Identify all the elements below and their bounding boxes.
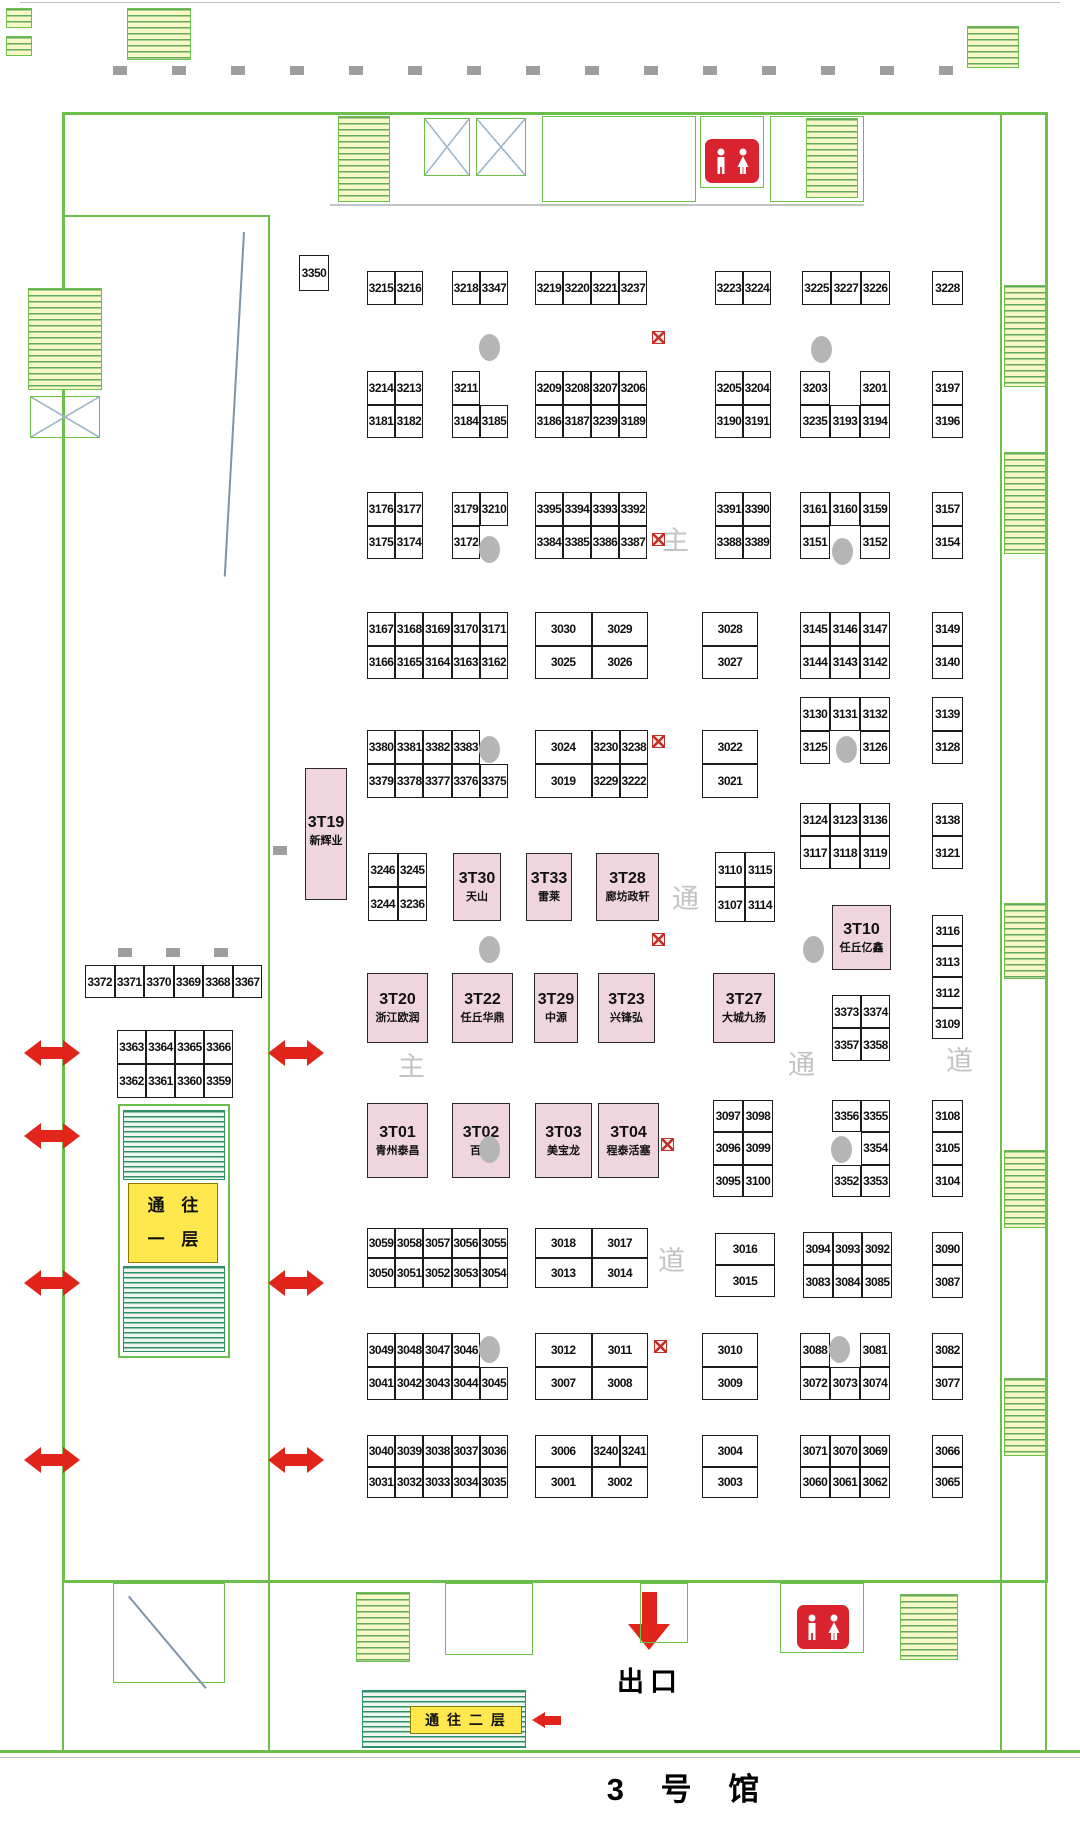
booth-3048[interactable]: 3048 [395, 1333, 423, 1367]
wall-pillar [273, 846, 287, 855]
booth-3392[interactable]: 3392 [619, 492, 647, 526]
column-pillar [811, 336, 832, 363]
stairs-block [1004, 452, 1046, 554]
booth-3040[interactable]: 3040 [367, 1435, 395, 1467]
booth-id: 3T22 [464, 990, 500, 1011]
booth-3051[interactable]: 3051 [395, 1258, 423, 1288]
stairs-block [1004, 285, 1046, 387]
escalator-hatch [123, 1110, 225, 1180]
booth-3049[interactable]: 3049 [367, 1333, 395, 1367]
booth-3095[interactable]: 3095 [713, 1165, 743, 1197]
booth-3003[interactable]: 3003 [702, 1467, 758, 1499]
booth-3011[interactable]: 3011 [592, 1333, 649, 1367]
booth-3033[interactable]: 3033 [423, 1467, 451, 1499]
stairs-block [1004, 903, 1046, 979]
booth-3T30[interactable]: 3T30天山 [453, 853, 501, 921]
booth-3T33[interactable]: 3T33雷莱 [526, 853, 572, 921]
booth-3042[interactable]: 3042 [395, 1367, 423, 1401]
booth-3213[interactable]: 3213 [395, 371, 423, 405]
booth-3219[interactable]: 3219 [535, 271, 563, 305]
booth-3112[interactable]: 3112 [932, 977, 963, 1008]
booth-3T20[interactable]: 3T20浙江欧润 [367, 973, 428, 1043]
booth-3016[interactable]: 3016 [715, 1233, 775, 1265]
booth-3002[interactable]: 3002 [592, 1467, 649, 1499]
booth-3116[interactable]: 3116 [932, 915, 963, 946]
booth-3214[interactable]: 3214 [367, 371, 395, 405]
to-first-floor-line1: 通 往 [142, 1189, 205, 1223]
booth-3357[interactable]: 3357 [832, 1028, 861, 1061]
booth-3170[interactable]: 3170 [452, 612, 480, 646]
booth-3211[interactable]: 3211 [452, 371, 480, 405]
booth-id: 3T33 [531, 869, 567, 890]
booth-3009[interactable]: 3009 [702, 1367, 758, 1401]
to-second-floor-label[interactable]: 通 往 二 层 [410, 1706, 522, 1734]
booth-3090[interactable]: 3090 [932, 1232, 963, 1265]
booth-3107[interactable]: 3107 [715, 887, 745, 922]
booth-3364[interactable]: 3364 [146, 1030, 175, 1064]
booth-3057[interactable]: 3057 [423, 1228, 451, 1258]
booth-3190[interactable]: 3190 [715, 405, 743, 439]
booth-3160[interactable]: 3160 [830, 492, 860, 526]
booth-3131[interactable]: 3131 [830, 697, 860, 731]
booth-3060[interactable]: 3060 [800, 1467, 830, 1499]
booth-3052[interactable]: 3052 [423, 1258, 451, 1288]
booth-3T29[interactable]: 3T29中源 [534, 973, 578, 1043]
booth-3367[interactable]: 3367 [233, 965, 263, 998]
booth-3010[interactable]: 3010 [702, 1333, 758, 1367]
woman-figure-icon [735, 148, 751, 175]
booth-3050[interactable]: 3050 [367, 1258, 395, 1288]
booth-3008[interactable]: 3008 [592, 1367, 649, 1401]
booth-3T22[interactable]: 3T22任丘华鼎 [452, 973, 513, 1043]
booth-3088[interactable]: 3088 [800, 1333, 830, 1367]
booth-3177[interactable]: 3177 [395, 492, 423, 526]
stairs-block [1004, 1150, 1046, 1228]
booth-3081[interactable]: 3081 [860, 1333, 890, 1367]
booth-3T04[interactable]: 3T04程泰活塞 [598, 1103, 659, 1178]
booth-3094[interactable]: 3094 [803, 1232, 833, 1265]
booth-3380[interactable]: 3380 [367, 730, 395, 764]
booth-3205[interactable]: 3205 [715, 371, 743, 405]
booth-3216[interactable]: 3216 [395, 271, 423, 305]
booth-3164[interactable]: 3164 [423, 646, 451, 680]
booth-3084[interactable]: 3084 [833, 1265, 863, 1298]
booth-3026[interactable]: 3026 [592, 646, 649, 680]
booth-3130[interactable]: 3130 [800, 697, 830, 731]
booth-3159[interactable]: 3159 [860, 492, 890, 526]
booth-3230[interactable]: 3230 [592, 730, 620, 764]
booth-3162[interactable]: 3162 [480, 646, 508, 680]
wall-pillar [231, 66, 245, 75]
booth-3365[interactable]: 3365 [175, 1030, 204, 1064]
booth-3054[interactable]: 3054 [480, 1258, 508, 1288]
booth-3025[interactable]: 3025 [535, 646, 592, 680]
booth-3353[interactable]: 3353 [861, 1165, 890, 1197]
to-first-floor-label[interactable]: 通 往 一 层 [128, 1183, 218, 1263]
booth-3123[interactable]: 3123 [830, 803, 860, 836]
booth-company-name: 兴锋弘 [610, 1011, 643, 1025]
wall-line [330, 204, 864, 206]
booth-3241[interactable]: 3241 [620, 1435, 648, 1467]
booth-company-name: 程泰活塞 [607, 1144, 651, 1158]
booth-3362[interactable]: 3362 [117, 1064, 146, 1098]
booth-3165[interactable]: 3165 [395, 646, 423, 680]
booth-3T27[interactable]: 3T27大城九扬 [713, 973, 775, 1043]
booth-3140[interactable]: 3140 [932, 646, 963, 680]
booth-3062[interactable]: 3062 [860, 1467, 890, 1499]
booth-3059[interactable]: 3059 [367, 1228, 395, 1258]
booth-3087[interactable]: 3087 [932, 1265, 963, 1298]
booth-3354[interactable]: 3354 [861, 1132, 890, 1164]
booth-3T01[interactable]: 3T01青州泰昌 [367, 1103, 428, 1178]
booth-3167[interactable]: 3167 [367, 612, 395, 646]
booth-3056[interactable]: 3056 [452, 1228, 480, 1258]
booth-3366[interactable]: 3366 [204, 1030, 233, 1064]
column-pillar [829, 1336, 850, 1363]
booth-3172[interactable]: 3172 [452, 526, 480, 560]
booth-3018[interactable]: 3018 [535, 1228, 592, 1258]
booth-3386[interactable]: 3386 [591, 526, 619, 560]
booth-3043[interactable]: 3043 [423, 1367, 451, 1401]
booth-3T10[interactable]: 3T10任丘亿鑫 [832, 905, 891, 970]
booth-3221[interactable]: 3221 [591, 271, 619, 305]
booth-3220[interactable]: 3220 [563, 271, 591, 305]
booth-3179[interactable]: 3179 [452, 492, 480, 526]
booth-company-name: 美宝龙 [547, 1144, 580, 1158]
booth-3387[interactable]: 3387 [619, 526, 647, 560]
booth-3191[interactable]: 3191 [743, 405, 771, 439]
booth-3149[interactable]: 3149 [932, 612, 963, 646]
booth-3015[interactable]: 3015 [715, 1265, 775, 1297]
booth-3017[interactable]: 3017 [592, 1228, 649, 1258]
column-pillar [803, 936, 824, 963]
booth-id: 3T10 [843, 920, 879, 941]
stairs-block [6, 36, 32, 56]
booth-3061[interactable]: 3061 [830, 1467, 860, 1499]
booth-3381[interactable]: 3381 [395, 730, 423, 764]
booth-3T28[interactable]: 3T28廊坊政轩 [596, 853, 659, 921]
booth-3077[interactable]: 3077 [932, 1367, 963, 1401]
booth-3119[interactable]: 3119 [860, 836, 890, 869]
booth-3142[interactable]: 3142 [860, 646, 890, 680]
booth-3360[interactable]: 3360 [175, 1064, 204, 1098]
booth-3066[interactable]: 3066 [932, 1435, 963, 1467]
booth-3237[interactable]: 3237 [619, 271, 647, 305]
booth-3117[interactable]: 3117 [800, 836, 830, 869]
wall-pillar [585, 66, 599, 75]
booth-3384[interactable]: 3384 [535, 526, 563, 560]
booth-3024[interactable]: 3024 [535, 730, 592, 764]
booth-3376[interactable]: 3376 [452, 764, 480, 798]
booth-3007[interactable]: 3007 [535, 1367, 592, 1401]
booth-3022[interactable]: 3022 [702, 730, 758, 764]
booth-3031[interactable]: 3031 [367, 1467, 395, 1499]
booth-3114[interactable]: 3114 [745, 887, 775, 922]
booth-3373[interactable]: 3373 [832, 995, 861, 1028]
booth-3204[interactable]: 3204 [743, 371, 771, 405]
booth-3181[interactable]: 3181 [367, 405, 395, 439]
wall-pillar [172, 66, 186, 75]
booth-3390[interactable]: 3390 [743, 492, 771, 526]
booth-3012[interactable]: 3012 [535, 1333, 592, 1367]
booth-3375[interactable]: 3375 [480, 764, 508, 798]
booth-3223[interactable]: 3223 [715, 271, 743, 305]
booth-3083[interactable]: 3083 [803, 1265, 833, 1298]
booth-3393[interactable]: 3393 [591, 492, 619, 526]
booth-3196[interactable]: 3196 [932, 405, 963, 439]
booth-3186[interactable]: 3186 [535, 405, 563, 439]
booth-3154[interactable]: 3154 [932, 526, 963, 560]
booth-3246[interactable]: 3246 [368, 853, 398, 887]
booth-3069[interactable]: 3069 [860, 1435, 890, 1467]
booth-3174[interactable]: 3174 [395, 526, 423, 560]
elevator-shaft [30, 396, 100, 438]
booth-3239[interactable]: 3239 [591, 405, 619, 439]
booth-3355[interactable]: 3355 [861, 1100, 890, 1132]
booth-3128[interactable]: 3128 [932, 731, 963, 765]
booth-3058[interactable]: 3058 [395, 1228, 423, 1258]
wall-pillar [290, 66, 304, 75]
booth-3194[interactable]: 3194 [860, 405, 890, 439]
booth-3096[interactable]: 3096 [713, 1132, 743, 1164]
booth-3151[interactable]: 3151 [800, 526, 830, 560]
booth-3014[interactable]: 3014 [592, 1258, 649, 1288]
booth-company-name: 雷莱 [538, 890, 560, 904]
booth-3378[interactable]: 3378 [395, 764, 423, 798]
booth-3125[interactable]: 3125 [800, 731, 830, 765]
booth-3034[interactable]: 3034 [452, 1467, 480, 1499]
booth-3168[interactable]: 3168 [395, 612, 423, 646]
booth-3224[interactable]: 3224 [743, 271, 771, 305]
booth-3082[interactable]: 3082 [932, 1333, 963, 1367]
column-pillar [836, 736, 857, 763]
booth-3372[interactable]: 3372 [85, 965, 115, 998]
booth-3363[interactable]: 3363 [117, 1030, 146, 1064]
booth-3350[interactable]: 3350 [299, 255, 329, 291]
booth-3053[interactable]: 3053 [452, 1258, 480, 1288]
booth-3222[interactable]: 3222 [620, 764, 648, 798]
booth-3245[interactable]: 3245 [398, 853, 428, 887]
booth-3029[interactable]: 3029 [592, 612, 649, 646]
booth-3072[interactable]: 3072 [800, 1367, 830, 1401]
booth-3145[interactable]: 3145 [800, 612, 830, 646]
booth-3099[interactable]: 3099 [743, 1132, 773, 1164]
booth-3161[interactable]: 3161 [800, 492, 830, 526]
wall-pillar [166, 948, 180, 957]
booth-3001[interactable]: 3001 [535, 1467, 592, 1499]
booth-3113[interactable]: 3113 [932, 946, 963, 977]
booth-3238[interactable]: 3238 [620, 730, 648, 764]
booth-3368[interactable]: 3368 [203, 965, 233, 998]
booth-company-name: 廊坊政轩 [606, 890, 650, 904]
booth-3163[interactable]: 3163 [452, 646, 480, 680]
booth-3108[interactable]: 3108 [932, 1100, 963, 1132]
booth-3039[interactable]: 3039 [395, 1435, 423, 1467]
booth-3047[interactable]: 3047 [423, 1333, 451, 1367]
woman-figure-icon [826, 1614, 842, 1641]
booth-3124[interactable]: 3124 [800, 803, 830, 836]
booth-3175[interactable]: 3175 [367, 526, 395, 560]
booth-3041[interactable]: 3041 [367, 1367, 395, 1401]
booth-3092[interactable]: 3092 [862, 1232, 892, 1265]
booth-3104[interactable]: 3104 [932, 1165, 963, 1197]
booth-3T23[interactable]: 3T23兴锋弘 [598, 973, 655, 1043]
booth-3377[interactable]: 3377 [423, 764, 451, 798]
booth-id: 3T30 [459, 869, 495, 890]
booth-3038[interactable]: 3038 [423, 1435, 451, 1467]
booth-3100[interactable]: 3100 [743, 1165, 773, 1197]
booth-3388[interactable]: 3388 [715, 526, 743, 560]
double-arrow-icon [24, 1123, 80, 1149]
booth-3215[interactable]: 3215 [367, 271, 395, 305]
booth-3370[interactable]: 3370 [144, 965, 174, 998]
booth-3147[interactable]: 3147 [860, 612, 890, 646]
double-arrow-icon [268, 1447, 324, 1473]
booth-3209[interactable]: 3209 [535, 371, 563, 405]
booth-3139[interactable]: 3139 [932, 697, 963, 731]
booth-3229[interactable]: 3229 [592, 764, 620, 798]
booth-3379[interactable]: 3379 [367, 764, 395, 798]
booth-3055[interactable]: 3055 [480, 1228, 508, 1258]
booth-3121[interactable]: 3121 [932, 836, 963, 869]
booth-3240[interactable]: 3240 [592, 1435, 620, 1467]
booth-3394[interactable]: 3394 [563, 492, 591, 526]
booth-3210[interactable]: 3210 [480, 492, 508, 526]
booth-3171[interactable]: 3171 [480, 612, 508, 646]
booth-3228[interactable]: 3228 [932, 271, 963, 305]
wall-pillar [408, 66, 422, 75]
booth-3143[interactable]: 3143 [830, 646, 860, 680]
booth-3028[interactable]: 3028 [702, 612, 758, 646]
wall-pillar [644, 66, 658, 75]
booth-id: 3T28 [609, 869, 645, 890]
booth-3110[interactable]: 3110 [715, 852, 745, 887]
stairs-block [1004, 1378, 1046, 1456]
booth-3352[interactable]: 3352 [832, 1165, 861, 1197]
booth-3235[interactable]: 3235 [800, 405, 830, 439]
booth-3105[interactable]: 3105 [932, 1132, 963, 1164]
booth-3358[interactable]: 3358 [861, 1028, 890, 1061]
booth-3036[interactable]: 3036 [480, 1435, 508, 1467]
booth-3046[interactable]: 3046 [452, 1333, 480, 1367]
booth-3144[interactable]: 3144 [800, 646, 830, 680]
booth-3382[interactable]: 3382 [423, 730, 451, 764]
booth-3073[interactable]: 3073 [830, 1367, 860, 1401]
booth-3093[interactable]: 3093 [833, 1232, 863, 1265]
booth-3227[interactable]: 3227 [831, 271, 860, 305]
booth-3185[interactable]: 3185 [480, 405, 508, 439]
booth-3169[interactable]: 3169 [423, 612, 451, 646]
booth-3021[interactable]: 3021 [702, 764, 758, 798]
booth-3152[interactable]: 3152 [860, 526, 890, 560]
booth-3182[interactable]: 3182 [395, 405, 423, 439]
booth-3356[interactable]: 3356 [832, 1100, 861, 1132]
booth-3361[interactable]: 3361 [146, 1064, 175, 1098]
booth-3389[interactable]: 3389 [743, 526, 771, 560]
booth-3166[interactable]: 3166 [367, 646, 395, 680]
booth-3206[interactable]: 3206 [619, 371, 647, 405]
booth-3097[interactable]: 3097 [713, 1100, 743, 1132]
booth-3359[interactable]: 3359 [204, 1064, 233, 1098]
booth-3189[interactable]: 3189 [619, 405, 647, 439]
booth-3225[interactable]: 3225 [802, 271, 831, 305]
booth-3244[interactable]: 3244 [368, 887, 398, 921]
booth-3004[interactable]: 3004 [702, 1435, 758, 1467]
booth-3391[interactable]: 3391 [715, 492, 743, 526]
wall-pillar [467, 66, 481, 75]
booth-3138[interactable]: 3138 [932, 803, 963, 836]
booth-3193[interactable]: 3193 [830, 405, 860, 439]
booth-3118[interactable]: 3118 [830, 836, 860, 869]
booth-3071[interactable]: 3071 [800, 1435, 830, 1467]
booth-3374[interactable]: 3374 [861, 995, 890, 1028]
booth-3201[interactable]: 3201 [860, 371, 890, 405]
booth-3035[interactable]: 3035 [480, 1467, 508, 1499]
booth-3019[interactable]: 3019 [535, 764, 592, 798]
booth-3037[interactable]: 3037 [452, 1435, 480, 1467]
wall-line [1000, 112, 1002, 1580]
column-pillar [479, 536, 500, 563]
booth-3136[interactable]: 3136 [860, 803, 890, 836]
booth-3065[interactable]: 3065 [932, 1467, 963, 1499]
booth-3044[interactable]: 3044 [452, 1367, 480, 1401]
to-first-floor-line2: 一 层 [142, 1223, 205, 1257]
booth-3157[interactable]: 3157 [932, 492, 963, 526]
booth-3126[interactable]: 3126 [860, 731, 890, 765]
booth-3045[interactable]: 3045 [480, 1367, 508, 1401]
booth-3085[interactable]: 3085 [862, 1265, 892, 1298]
booth-3109[interactable]: 3109 [932, 1008, 963, 1039]
booth-3T03[interactable]: 3T03美宝龙 [535, 1103, 592, 1178]
booth-3098[interactable]: 3098 [743, 1100, 773, 1132]
booth-3030[interactable]: 3030 [535, 612, 592, 646]
booth-3383[interactable]: 3383 [452, 730, 480, 764]
corridor-label: 道 [658, 1248, 688, 1278]
booth-3T19[interactable]: 3T19新辉业 [305, 768, 347, 900]
booth-3187[interactable]: 3187 [563, 405, 591, 439]
booth-3236[interactable]: 3236 [398, 887, 428, 921]
booth-3006[interactable]: 3006 [535, 1435, 592, 1467]
booth-3371[interactable]: 3371 [115, 965, 145, 998]
booth-3132[interactable]: 3132 [860, 697, 890, 731]
booth-3184[interactable]: 3184 [452, 405, 480, 439]
booth-id: 3T23 [608, 990, 644, 1011]
booth-3146[interactable]: 3146 [830, 612, 860, 646]
booth-3395[interactable]: 3395 [535, 492, 563, 526]
booth-id: 3T27 [726, 990, 762, 1011]
booth-3347[interactable]: 3347 [480, 271, 508, 305]
booth-3203[interactable]: 3203 [800, 371, 830, 405]
booth-3013[interactable]: 3013 [535, 1258, 592, 1288]
wall-pillar [939, 66, 953, 75]
booth-3207[interactable]: 3207 [591, 371, 619, 405]
booth-3070[interactable]: 3070 [830, 1435, 860, 1467]
booth-3226[interactable]: 3226 [861, 271, 890, 305]
corridor-label: 道 [946, 1048, 976, 1078]
booth-3115[interactable]: 3115 [745, 852, 775, 887]
booth-3218[interactable]: 3218 [452, 271, 480, 305]
booth-3385[interactable]: 3385 [563, 526, 591, 560]
booth-3197[interactable]: 3197 [932, 371, 963, 405]
booth-3208[interactable]: 3208 [563, 371, 591, 405]
booth-3027[interactable]: 3027 [702, 646, 758, 680]
booth-3176[interactable]: 3176 [367, 492, 395, 526]
wall-line [62, 112, 1048, 115]
booth-3369[interactable]: 3369 [174, 965, 204, 998]
booth-3032[interactable]: 3032 [395, 1467, 423, 1499]
booth-3074[interactable]: 3074 [860, 1367, 890, 1401]
double-arrow-icon [24, 1447, 80, 1473]
